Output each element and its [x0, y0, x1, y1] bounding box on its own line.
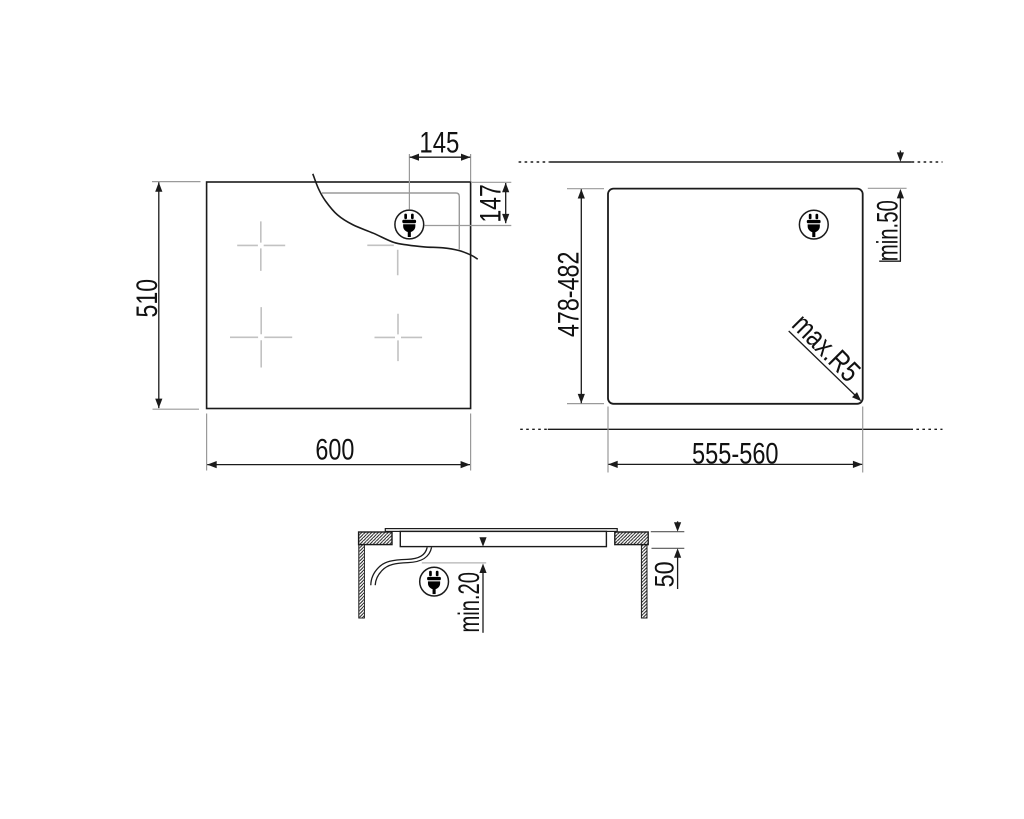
- svg-text:478-482: 478-482: [552, 252, 585, 338]
- svg-text:min.20: min.20: [453, 572, 486, 633]
- svg-text:555-560: 555-560: [692, 437, 779, 470]
- svg-text:147: 147: [474, 184, 507, 223]
- svg-text:50: 50: [649, 561, 679, 587]
- svg-text:min.50: min.50: [872, 200, 905, 261]
- svg-text:510: 510: [131, 279, 164, 318]
- svg-text:145: 145: [419, 127, 459, 160]
- svg-text:600: 600: [315, 434, 354, 467]
